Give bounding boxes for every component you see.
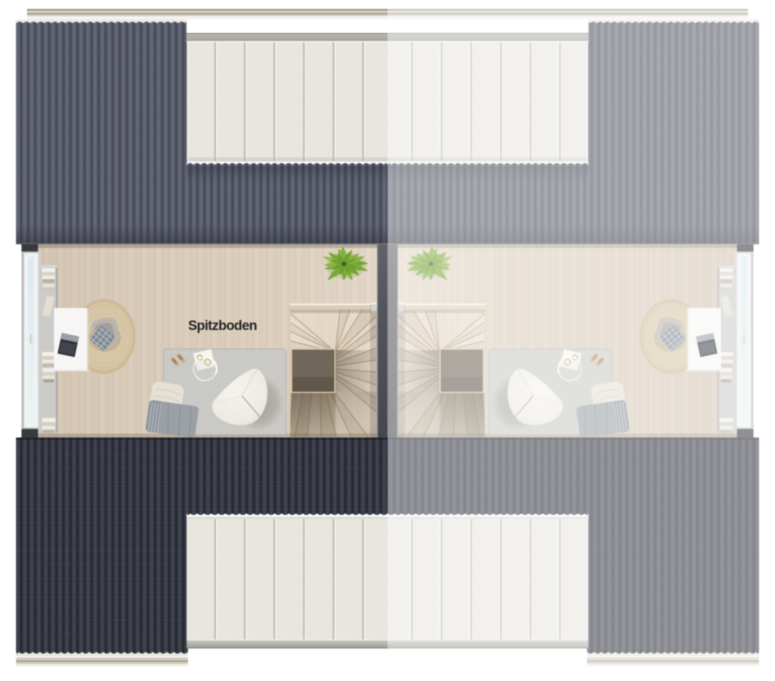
svg-text:Spitzboden: Spitzboden bbox=[188, 318, 257, 333]
